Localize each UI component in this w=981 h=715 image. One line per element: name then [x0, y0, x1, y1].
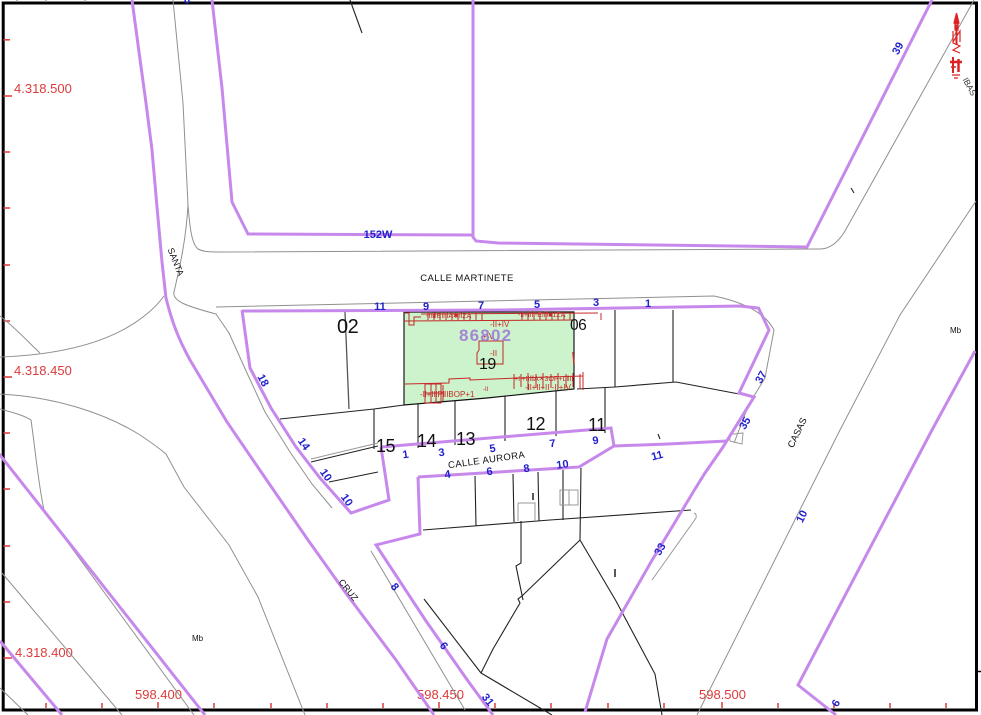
svg-text:Mb: Mb — [950, 326, 962, 335]
svg-text:14: 14 — [417, 431, 437, 451]
svg-text:10: 10 — [556, 458, 570, 472]
svg-text:3: 3 — [593, 297, 599, 309]
svg-text:15: 15 — [376, 436, 396, 456]
svg-text:5: 5 — [534, 299, 540, 311]
svg-text:9: 9 — [423, 301, 429, 313]
svg-text:0: 0 — [184, 0, 190, 7]
svg-text:-II: -II — [483, 387, 489, 393]
svg-text:+Il+IIl‖A✕3OP+L‖II: +Il+IIl‖A✕3OP+L‖II — [514, 376, 573, 383]
svg-text:19: 19 — [479, 356, 496, 373]
svg-text:13: 13 — [456, 429, 476, 449]
svg-text:598.500: 598.500 — [699, 687, 746, 702]
svg-text:Mb: Mb — [192, 634, 204, 643]
svg-text:-IIl‖EIlIlA✱IlZA: -IIl‖EIlIlA✱IlZA — [426, 312, 472, 320]
svg-text:1: 1 — [645, 298, 651, 310]
svg-text:-Il+IlIP‖IBOP+1: -Il+IlIP‖IBOP+1 — [420, 390, 475, 399]
svg-text:02: 02 — [337, 316, 359, 338]
svg-text:06: 06 — [570, 317, 586, 334]
svg-text:7: 7 — [478, 300, 484, 312]
svg-text:-Il+IlIl-EIl‖■1ZA: -Il+IlIl-EIl‖■1ZA — [518, 312, 566, 319]
svg-text:86802: 86802 — [459, 326, 512, 345]
svg-text:CALLE MARTINETE: CALLE MARTINETE — [420, 273, 513, 284]
svg-text:152W: 152W — [364, 229, 393, 241]
svg-text:4.318.450: 4.318.450 — [14, 363, 72, 378]
svg-text:4.318.500: 4.318.500 — [14, 81, 72, 96]
svg-text:11: 11 — [374, 301, 386, 313]
svg-text:-Il+Il+II -II+IV: -Il+Il+II -II+IV — [525, 383, 572, 392]
svg-text:12: 12 — [526, 414, 546, 434]
svg-text:11: 11 — [588, 415, 606, 435]
